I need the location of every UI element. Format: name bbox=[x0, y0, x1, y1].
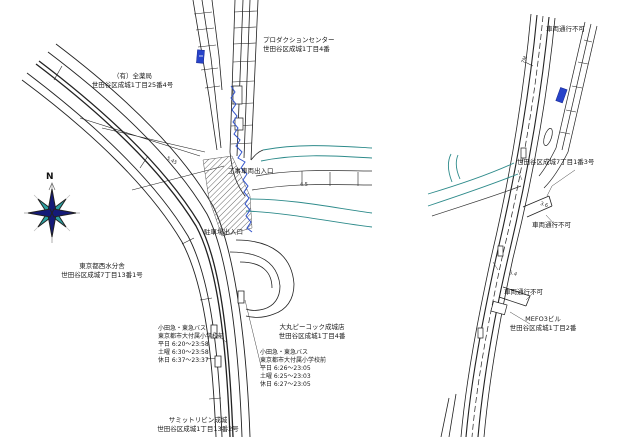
label-bus-stop-east: 小田急・東急バス 東京都市大付属小学校前 平日 6:26〜23:05 土曜 6:… bbox=[260, 349, 326, 389]
production-center-name: プロダクションセンター bbox=[263, 36, 335, 45]
label-no-vehicles-top: 車両通行不可 bbox=[546, 25, 585, 34]
label-water-office: 東京都西水分舎 世田谷区成城7丁目13番1号 bbox=[48, 262, 156, 281]
label-mefo-building: MEFO3ビル 世田谷区成城1丁目2番 bbox=[502, 315, 584, 334]
main-road-centerline bbox=[36, 61, 233, 437]
route-sign-right bbox=[556, 87, 567, 103]
pharmacy-name: （有）全薬局 bbox=[85, 72, 180, 81]
supermarket-name: 大丸ピーコック成城店 bbox=[262, 323, 362, 332]
label-no-vehicles-mid: 車両通行不可 bbox=[532, 221, 571, 230]
label-bus-stop-west: 小田急・東急バス 東京都市大付属小学校前 平日 6:20〜23:58 土曜 6:… bbox=[158, 325, 224, 365]
parking-loop-road bbox=[230, 240, 294, 317]
mefo-address: 世田谷区成城1丁目2番 bbox=[502, 324, 584, 333]
label-no-vehicles-low: 車両通行不可 bbox=[504, 288, 543, 297]
north-label: N bbox=[46, 172, 54, 182]
north-road bbox=[193, 0, 222, 150]
taper-lines bbox=[80, 118, 224, 190]
label-address-7-1-3: 世田谷区成城7丁目1番3号 bbox=[517, 158, 594, 167]
bus-west-operator: 小田急・東急バス bbox=[158, 325, 224, 333]
bus-west-stop-name: 東京都市大付属小学校前 bbox=[158, 333, 224, 341]
label-production-center: プロダクションセンター 世田谷区成城1丁目4番 bbox=[263, 36, 335, 55]
label-summit-store: サミットリビン成城 世田谷区成城1丁目13番2号 bbox=[146, 416, 250, 435]
production-center-address: 世田谷区成城1丁目4番 bbox=[263, 45, 335, 54]
pharmacy-address: 世田谷区成城1丁目25番4号 bbox=[85, 81, 180, 90]
label-parking-entrance: 駐車場出入口 bbox=[204, 228, 243, 237]
crossing-street-thin bbox=[432, 186, 521, 216]
label-pharmacy: （有）全薬局 世田谷区成城1丁目25番4号 bbox=[85, 72, 180, 91]
bus-east-stop-name: 東京都市大付属小学校前 bbox=[260, 357, 326, 365]
bus-east-operator: 小田急・東急バス bbox=[260, 349, 326, 357]
northeast-road bbox=[230, 0, 258, 160]
parallel-road-ticks bbox=[525, 40, 592, 134]
side-street-upper bbox=[246, 146, 372, 227]
bus-east-holiday: 休日 6:27〜23:05 bbox=[260, 381, 326, 389]
mefo-name: MEFO3ビル bbox=[502, 315, 584, 324]
route-sign bbox=[196, 50, 204, 64]
bus-west-holiday: 休日 6:37〜23:37 bbox=[158, 357, 224, 365]
site-map-page: プロダクションセンター 世田谷区成城1丁目4番 （有）全薬局 世田谷区成城1丁目… bbox=[0, 0, 640, 437]
building-footprint bbox=[491, 301, 507, 314]
dimension-4-5: 4.5 bbox=[300, 182, 308, 188]
supermarket-address: 世田谷区成城1丁目4番 bbox=[262, 332, 362, 341]
water-office-name: 東京都西水分舎 bbox=[48, 262, 156, 271]
ellipse-marker bbox=[542, 127, 554, 146]
compass-rose-icon bbox=[24, 183, 80, 243]
label-supermarket: 大丸ピーコック成城店 世田谷区成城1丁目4番 bbox=[262, 323, 362, 342]
summit-address: 世田谷区成城1丁目13番2号 bbox=[146, 425, 250, 434]
summit-name: サミットリビン成城 bbox=[146, 416, 250, 425]
label-construction-entrance: 工事車両出入口 bbox=[228, 167, 274, 176]
right-map bbox=[428, 14, 597, 437]
water-office-address: 世田谷区成城7丁目13番1号 bbox=[48, 271, 156, 280]
